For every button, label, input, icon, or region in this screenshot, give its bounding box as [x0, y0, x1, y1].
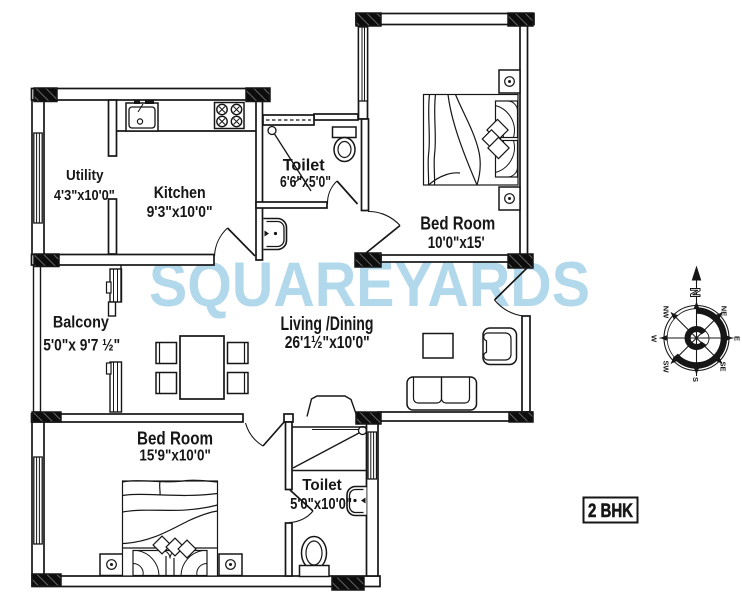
svg-text:E: E — [733, 336, 742, 341]
svg-text:2 BHK: 2 BHK — [588, 501, 633, 522]
svg-text:Toilet: Toilet — [283, 156, 325, 175]
svg-text:S: S — [691, 377, 700, 382]
svg-text:Kitchen: Kitchen — [154, 184, 206, 202]
svg-text:SW: SW — [662, 360, 671, 373]
svg-text:SE: SE — [719, 361, 728, 371]
svg-text:4'3"x10'0": 4'3"x10'0" — [54, 187, 115, 204]
svg-text:N: N — [688, 288, 703, 298]
svg-text:Bed Room: Bed Room — [137, 428, 213, 449]
svg-text:Bed Room: Bed Room — [420, 213, 495, 233]
svg-text:Utility: Utility — [66, 168, 104, 184]
svg-text:W: W — [650, 335, 659, 343]
svg-text:NW: NW — [662, 306, 671, 319]
svg-text:15'9"x10'0": 15'9"x10'0" — [139, 448, 211, 465]
svg-text:5'0"x 9'7 ½": 5'0"x 9'7 ½" — [43, 335, 120, 354]
svg-text:9'3"x10'0": 9'3"x10'0" — [147, 204, 213, 221]
svg-text:10'0"x15': 10'0"x15' — [428, 234, 485, 252]
svg-text:5'0"x10'0": 5'0"x10'0" — [290, 496, 352, 513]
svg-text:6'6"x5'0": 6'6"x5'0" — [280, 174, 331, 191]
svg-text:NE: NE — [720, 306, 729, 316]
svg-text:Toilet: Toilet — [302, 477, 342, 494]
svg-text:Balcony: Balcony — [53, 313, 109, 332]
svg-text:26'1½"x10'0": 26'1½"x10'0" — [285, 332, 370, 352]
